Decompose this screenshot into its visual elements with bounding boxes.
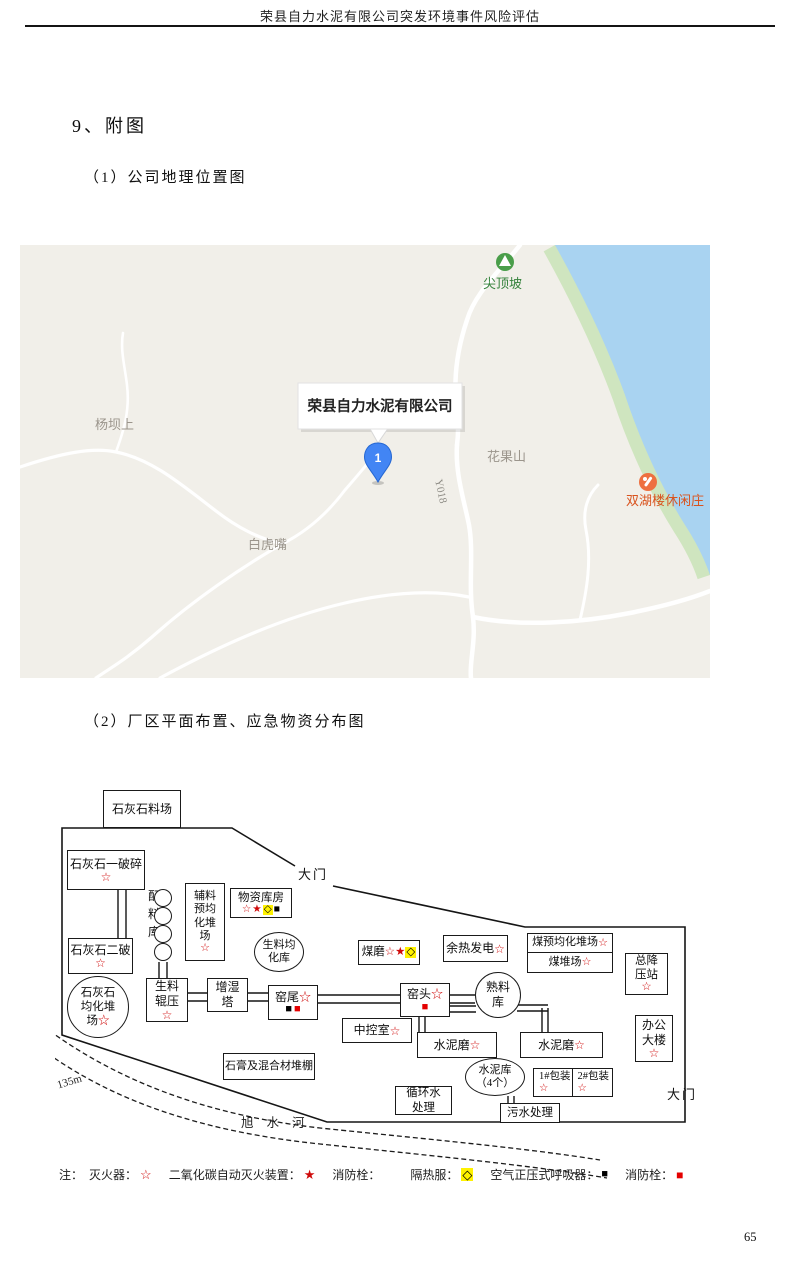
facility-label: 办公 大楼 — [642, 1018, 666, 1047]
facility-limestone-homo-yard: 石灰石 均化堆 场☆ — [67, 976, 129, 1038]
facility-label: 石膏及混合材堆棚 — [225, 1060, 313, 1073]
respirator-symbol: ■ — [274, 905, 280, 916]
extinguisher-symbol: ☆ — [162, 1009, 173, 1021]
facility-label: 生料均 化库 — [263, 939, 296, 966]
facility-label: 辅料 预均 化堆 场 — [194, 890, 216, 944]
facility-gypsum-shed: 石膏及混合材堆棚 — [223, 1053, 315, 1080]
facility-label: 石灰石一破碎 — [70, 857, 142, 872]
figure1-caption: （1）公司地理位置图 — [84, 166, 247, 187]
facility-label: 熟料 库 — [486, 980, 510, 1009]
facility-label: 煤磨 — [362, 945, 385, 959]
facility-substation: 总降 压站 ☆ — [625, 953, 668, 995]
facility-label: 窑头 — [407, 987, 431, 1001]
facility-label: 石灰石二破 — [70, 943, 130, 958]
marker-number: 1 — [375, 451, 382, 465]
facility-label: 物资库房 — [238, 891, 284, 905]
facility-label: 水泥磨 — [538, 1038, 574, 1053]
facility-circulating-water: 循环水 处理 — [395, 1086, 452, 1115]
facility-label: 余热发电 — [446, 941, 494, 956]
header-rule — [25, 25, 775, 27]
facility-cement-mill-1: 水泥磨☆ — [417, 1032, 497, 1058]
extinguisher-symbol: ☆ — [578, 1084, 587, 1095]
hydrant-symbol: ■ — [676, 1169, 683, 1181]
hill-label-huaguoshan: 花果山 — [487, 449, 526, 464]
page-header-title: 荣县自力水泥有限公司突发环境事件风险评估 — [0, 6, 800, 25]
extinguisher-symbol: ☆ — [98, 1015, 110, 1027]
hydrant-symbol: ■ — [294, 1004, 301, 1015]
extinguisher-symbol: ☆ — [494, 943, 505, 955]
insulation-suit-symbol: ◇ — [263, 905, 273, 916]
extinguisher-symbol: ☆ — [470, 1039, 481, 1051]
facility-label: 循环水 处理 — [406, 1086, 441, 1114]
peak-icon — [496, 253, 514, 271]
facility-control-room: 中控室☆ — [342, 1018, 412, 1043]
facility-limestone-yard: 石灰石料场 — [103, 790, 181, 828]
silo-circle — [154, 925, 172, 943]
legend: 注： 灭火器： ☆ 二氧化碳自动灭火装置： ★ 消防栓： 隔热服： ◇ 空气正压… — [59, 1166, 711, 1183]
extinguisher-symbol: ☆ — [574, 1039, 585, 1051]
extinguisher-symbol: ☆ — [539, 1084, 548, 1095]
facility-raw-roller-press: 生料 辊压 ☆ — [146, 978, 188, 1022]
facility-label: 1#包装 — [539, 1071, 571, 1084]
extinguisher-symbol: ☆ — [641, 982, 651, 994]
village-label-baihuzui: 白虎嘴 — [248, 537, 287, 552]
extinguisher-symbol: ☆ — [101, 871, 112, 883]
hydrant-symbol: ■ — [422, 1002, 429, 1013]
extinguisher-symbol: ☆ — [649, 1047, 660, 1059]
section-title: 9、附图 — [72, 112, 147, 138]
facility-kiln-tail: 窑尾☆ ■ ■ — [268, 985, 318, 1020]
facility-label: 中控室 — [354, 1023, 390, 1038]
facility-label: 水泥库 （4个） — [476, 1064, 515, 1091]
facility-cement-silo: 水泥库 （4个） — [465, 1058, 525, 1096]
facility-label: 生料 辊压 — [155, 979, 179, 1008]
facility-label: 窑尾 — [275, 990, 299, 1004]
extinguisher-symbol: ☆ — [299, 990, 311, 1004]
tooltip-label: 荣县自力水泥有限公司 — [307, 397, 453, 415]
facility-packing-2: 2#包装 ☆ — [572, 1068, 614, 1097]
facility-supplies-warehouse: 物资库房 ☆ ★ ◇ ■ — [230, 888, 292, 918]
document-page: 荣县自力水泥有限公司突发环境事件风险评估 9、附图 （1）公司地理位置图 — [0, 0, 800, 1276]
silo-circle — [154, 907, 172, 925]
legend-item-co2-system: 二氧化碳自动灭火装置： ★ — [169, 1166, 316, 1183]
extinguisher-symbol: ☆ — [140, 1168, 152, 1181]
respirator-symbol: ■ — [285, 1004, 292, 1015]
respirator-symbol: ■ — [601, 1169, 608, 1180]
legend-item-hydrant-1: 消防栓： — [332, 1166, 393, 1183]
page-number: 65 — [744, 1230, 757, 1245]
gate-label-top: 大门 — [298, 864, 328, 883]
restaurant-icon — [639, 473, 657, 491]
silo-circle — [154, 943, 172, 961]
facility-packing-1: 1#包装 ☆ — [533, 1068, 573, 1097]
extinguisher-symbol: ☆ — [390, 1025, 401, 1037]
facility-crusher2: 石灰石二破 ☆ — [68, 938, 133, 974]
facility-humidify-tower: 增湿 塔 — [207, 978, 248, 1012]
village-label-yangbashang: 杨坝上 — [95, 417, 134, 432]
legend-item-hydrant-2: 消防栓： ■ — [625, 1166, 683, 1183]
extinguisher-symbol: ☆ — [385, 947, 395, 959]
facility-label: 总降 压站 — [635, 954, 658, 982]
facility-sewage-treatment: 污水处理 — [500, 1103, 560, 1123]
facility-label: 污水处理 — [507, 1106, 553, 1120]
facility-label: 煤堆场 — [549, 956, 582, 969]
insulation-suit-symbol: ◇ — [461, 1168, 473, 1181]
extinguisher-symbol: ☆ — [242, 905, 251, 916]
gate-label-right: 大门 — [667, 1084, 697, 1103]
river-line — [55, 1026, 600, 1160]
legend-item-extinguisher: 灭火器： ☆ — [89, 1166, 152, 1183]
facility-label: 水泥磨 — [434, 1038, 470, 1053]
facility-crusher1: 石灰石一破碎 ☆ — [67, 850, 145, 890]
silo-circle — [154, 889, 172, 907]
co2-system-symbol: ★ — [395, 947, 405, 959]
restaurant-label: 双湖楼休闲庄 — [626, 493, 704, 508]
legend-item-insulation-suit: 隔热服： ◇ — [410, 1166, 473, 1183]
extinguisher-symbol: ☆ — [431, 987, 443, 1001]
plant-diagram: 石灰石料场 石灰石一破碎 ☆ 石灰石二破 ☆ 石灰石 均化堆 场☆ 配 料 库 … — [55, 780, 715, 1210]
location-map: 尖顶坡 杨坝上 白虎嘴 花果山 Y018 双湖楼休闲庄 荣县自力水泥有限公司 1 — [20, 245, 710, 678]
extinguisher-symbol: ☆ — [95, 957, 106, 969]
facility-label: 石灰石料场 — [112, 802, 172, 817]
extinguisher-symbol: ☆ — [200, 943, 210, 954]
facility-label: 煤预均化堆场 — [532, 936, 598, 949]
facility-office-building: 办公 大楼 ☆ — [635, 1015, 673, 1062]
facility-label: 增湿 塔 — [215, 980, 239, 1009]
location-map-canvas: 尖顶坡 杨坝上 白虎嘴 花果山 Y018 双湖楼休闲庄 荣县自力水泥有限公司 1 — [20, 245, 710, 678]
extinguisher-symbol: ☆ — [598, 938, 608, 949]
extinguisher-symbol: ☆ — [582, 957, 592, 968]
facility-raw-homo-silo: 生料均 化库 — [254, 932, 304, 972]
facility-clinker-silo: 熟料 库 — [475, 972, 521, 1018]
figure2-caption: （2）厂区平面布置、应急物资分布图 — [84, 710, 366, 731]
facility-coal-mill: 煤磨☆★◇ — [358, 940, 420, 965]
co2-system-symbol: ★ — [252, 905, 261, 916]
facility-cement-mill-2: 水泥磨☆ — [520, 1032, 603, 1058]
legend-item-respirator: 空气正压式呼吸器： ■ — [490, 1166, 608, 1183]
facility-label: 2#包装 — [578, 1071, 610, 1084]
co2-system-symbol: ★ — [304, 1168, 316, 1181]
legend-note: 注： — [59, 1166, 83, 1183]
facility-coal-yard: 煤堆场☆ — [527, 952, 613, 974]
facility-coal-homo-yard: 煤预均化堆场☆ — [527, 933, 613, 953]
facility-aux-homo-yard: 辅料 预均 化堆 场 ☆ — [185, 883, 225, 961]
peak-label: 尖顶坡 — [483, 276, 522, 291]
insulation-suit-symbol: ◇ — [405, 947, 416, 959]
facility-kiln-head: 窑头☆ ■ — [400, 983, 450, 1017]
facility-waste-heat-power: 余热发电☆ — [443, 935, 508, 962]
river-label: 旭水河 — [241, 1112, 318, 1131]
